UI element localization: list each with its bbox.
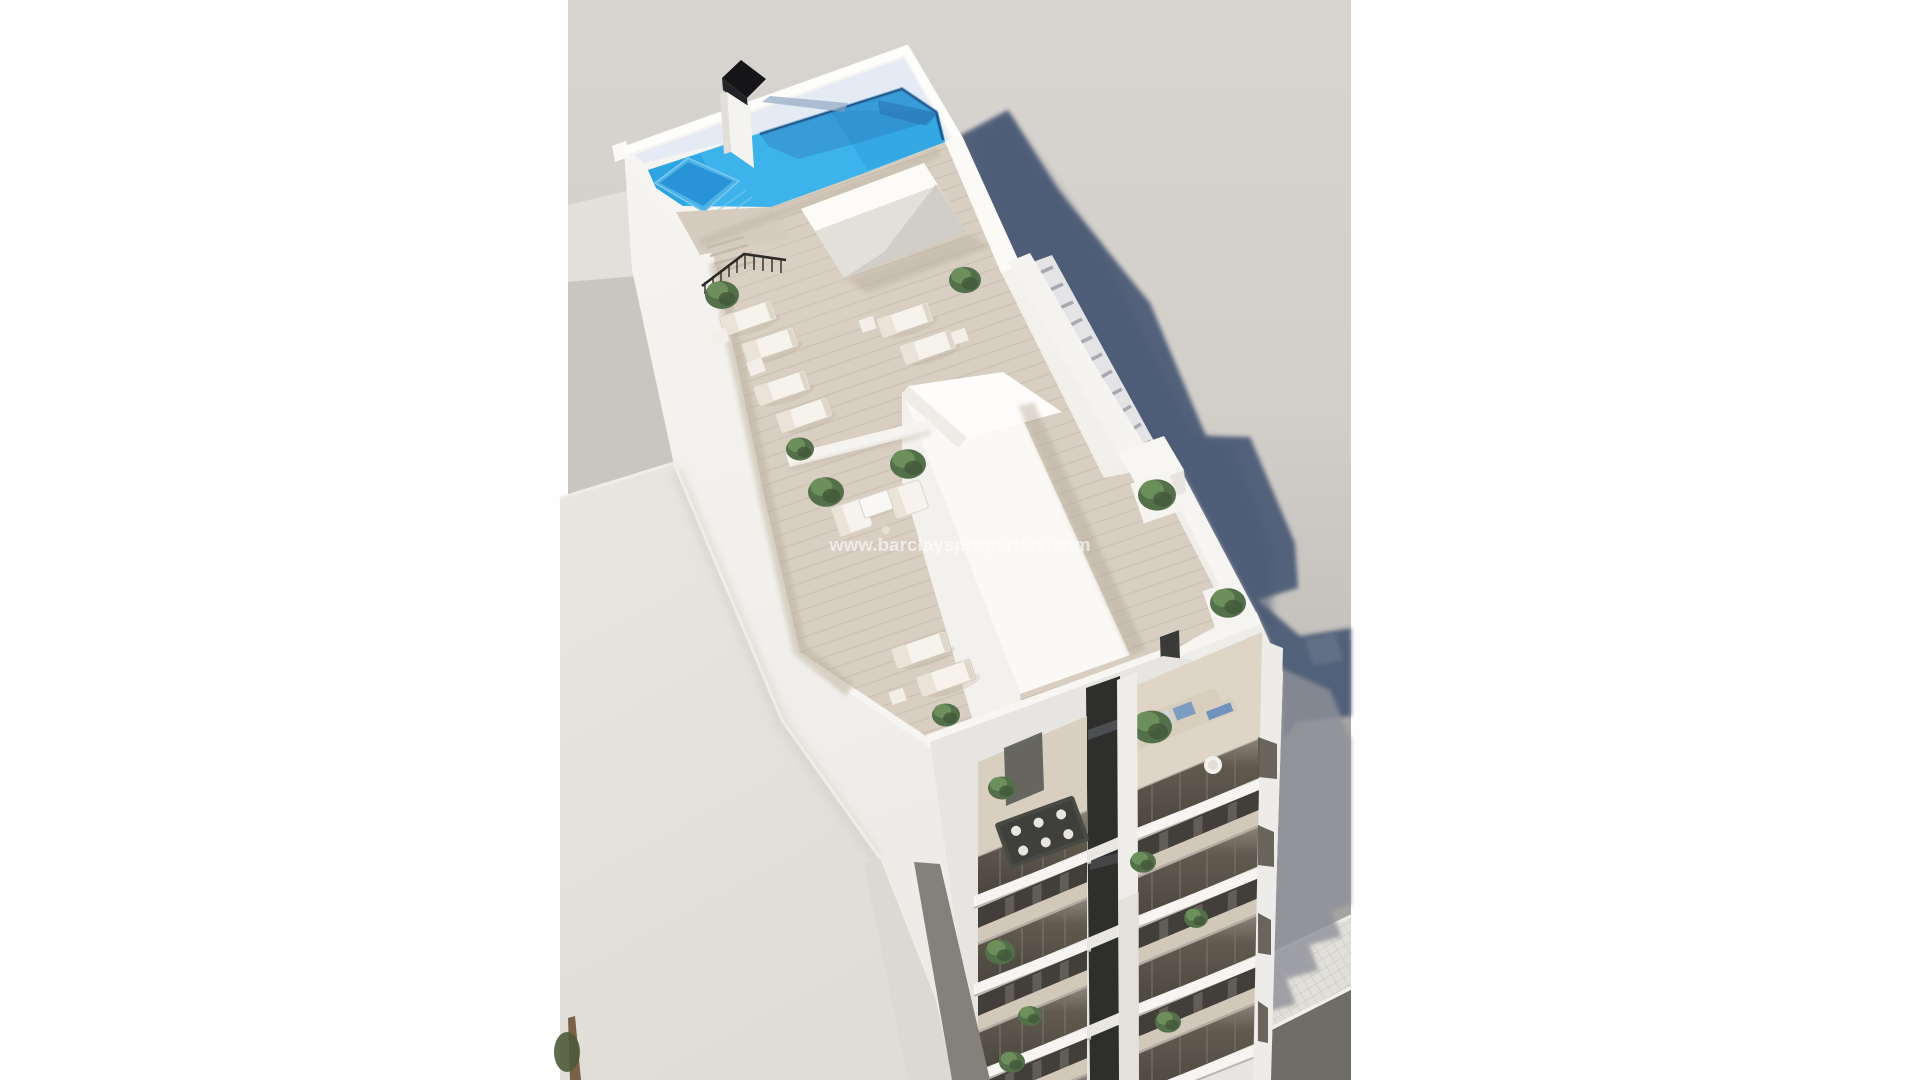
- svg-text:www.barclaysproperties.com: www.barclaysproperties.com: [828, 534, 1091, 555]
